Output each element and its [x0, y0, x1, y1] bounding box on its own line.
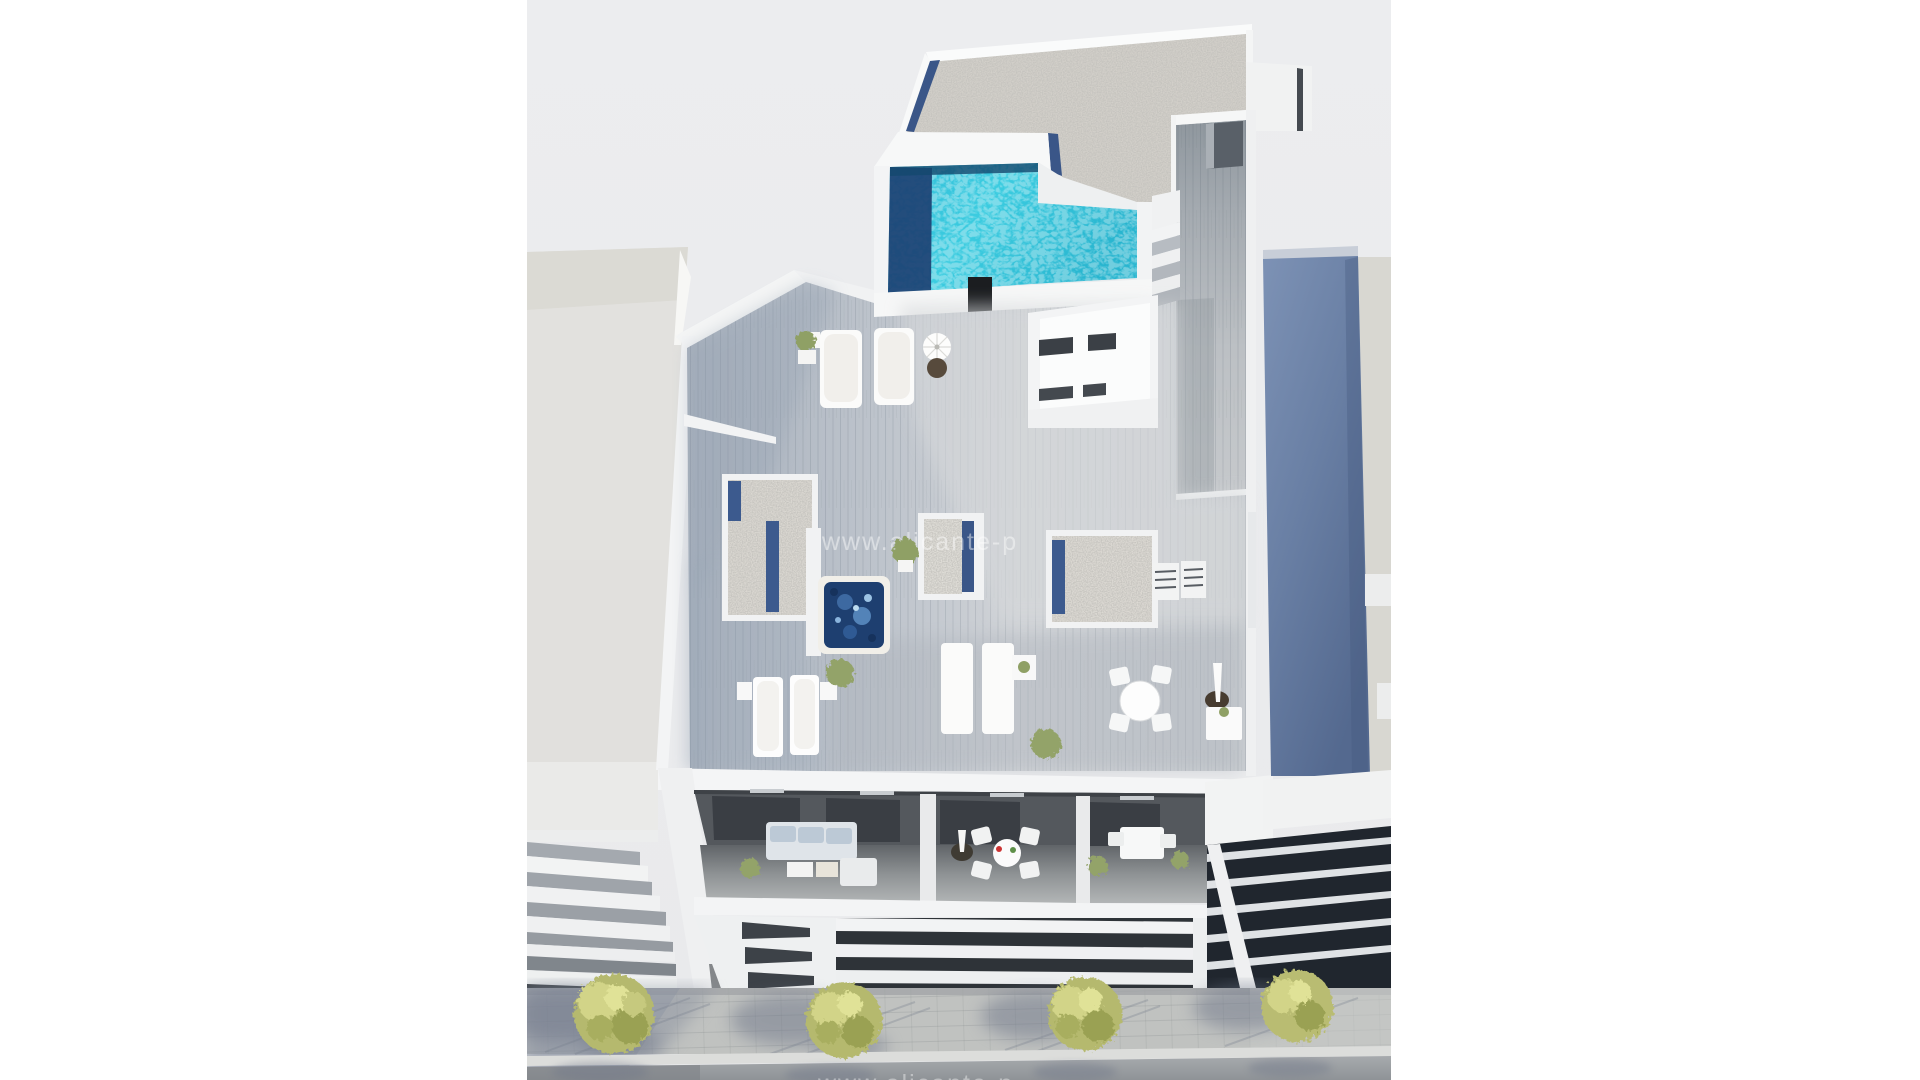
svg-text:www.alicante-p: www.alicante-p	[821, 528, 1018, 556]
svg-text:www.alicante-p: www.alicante-p	[817, 1070, 1014, 1080]
